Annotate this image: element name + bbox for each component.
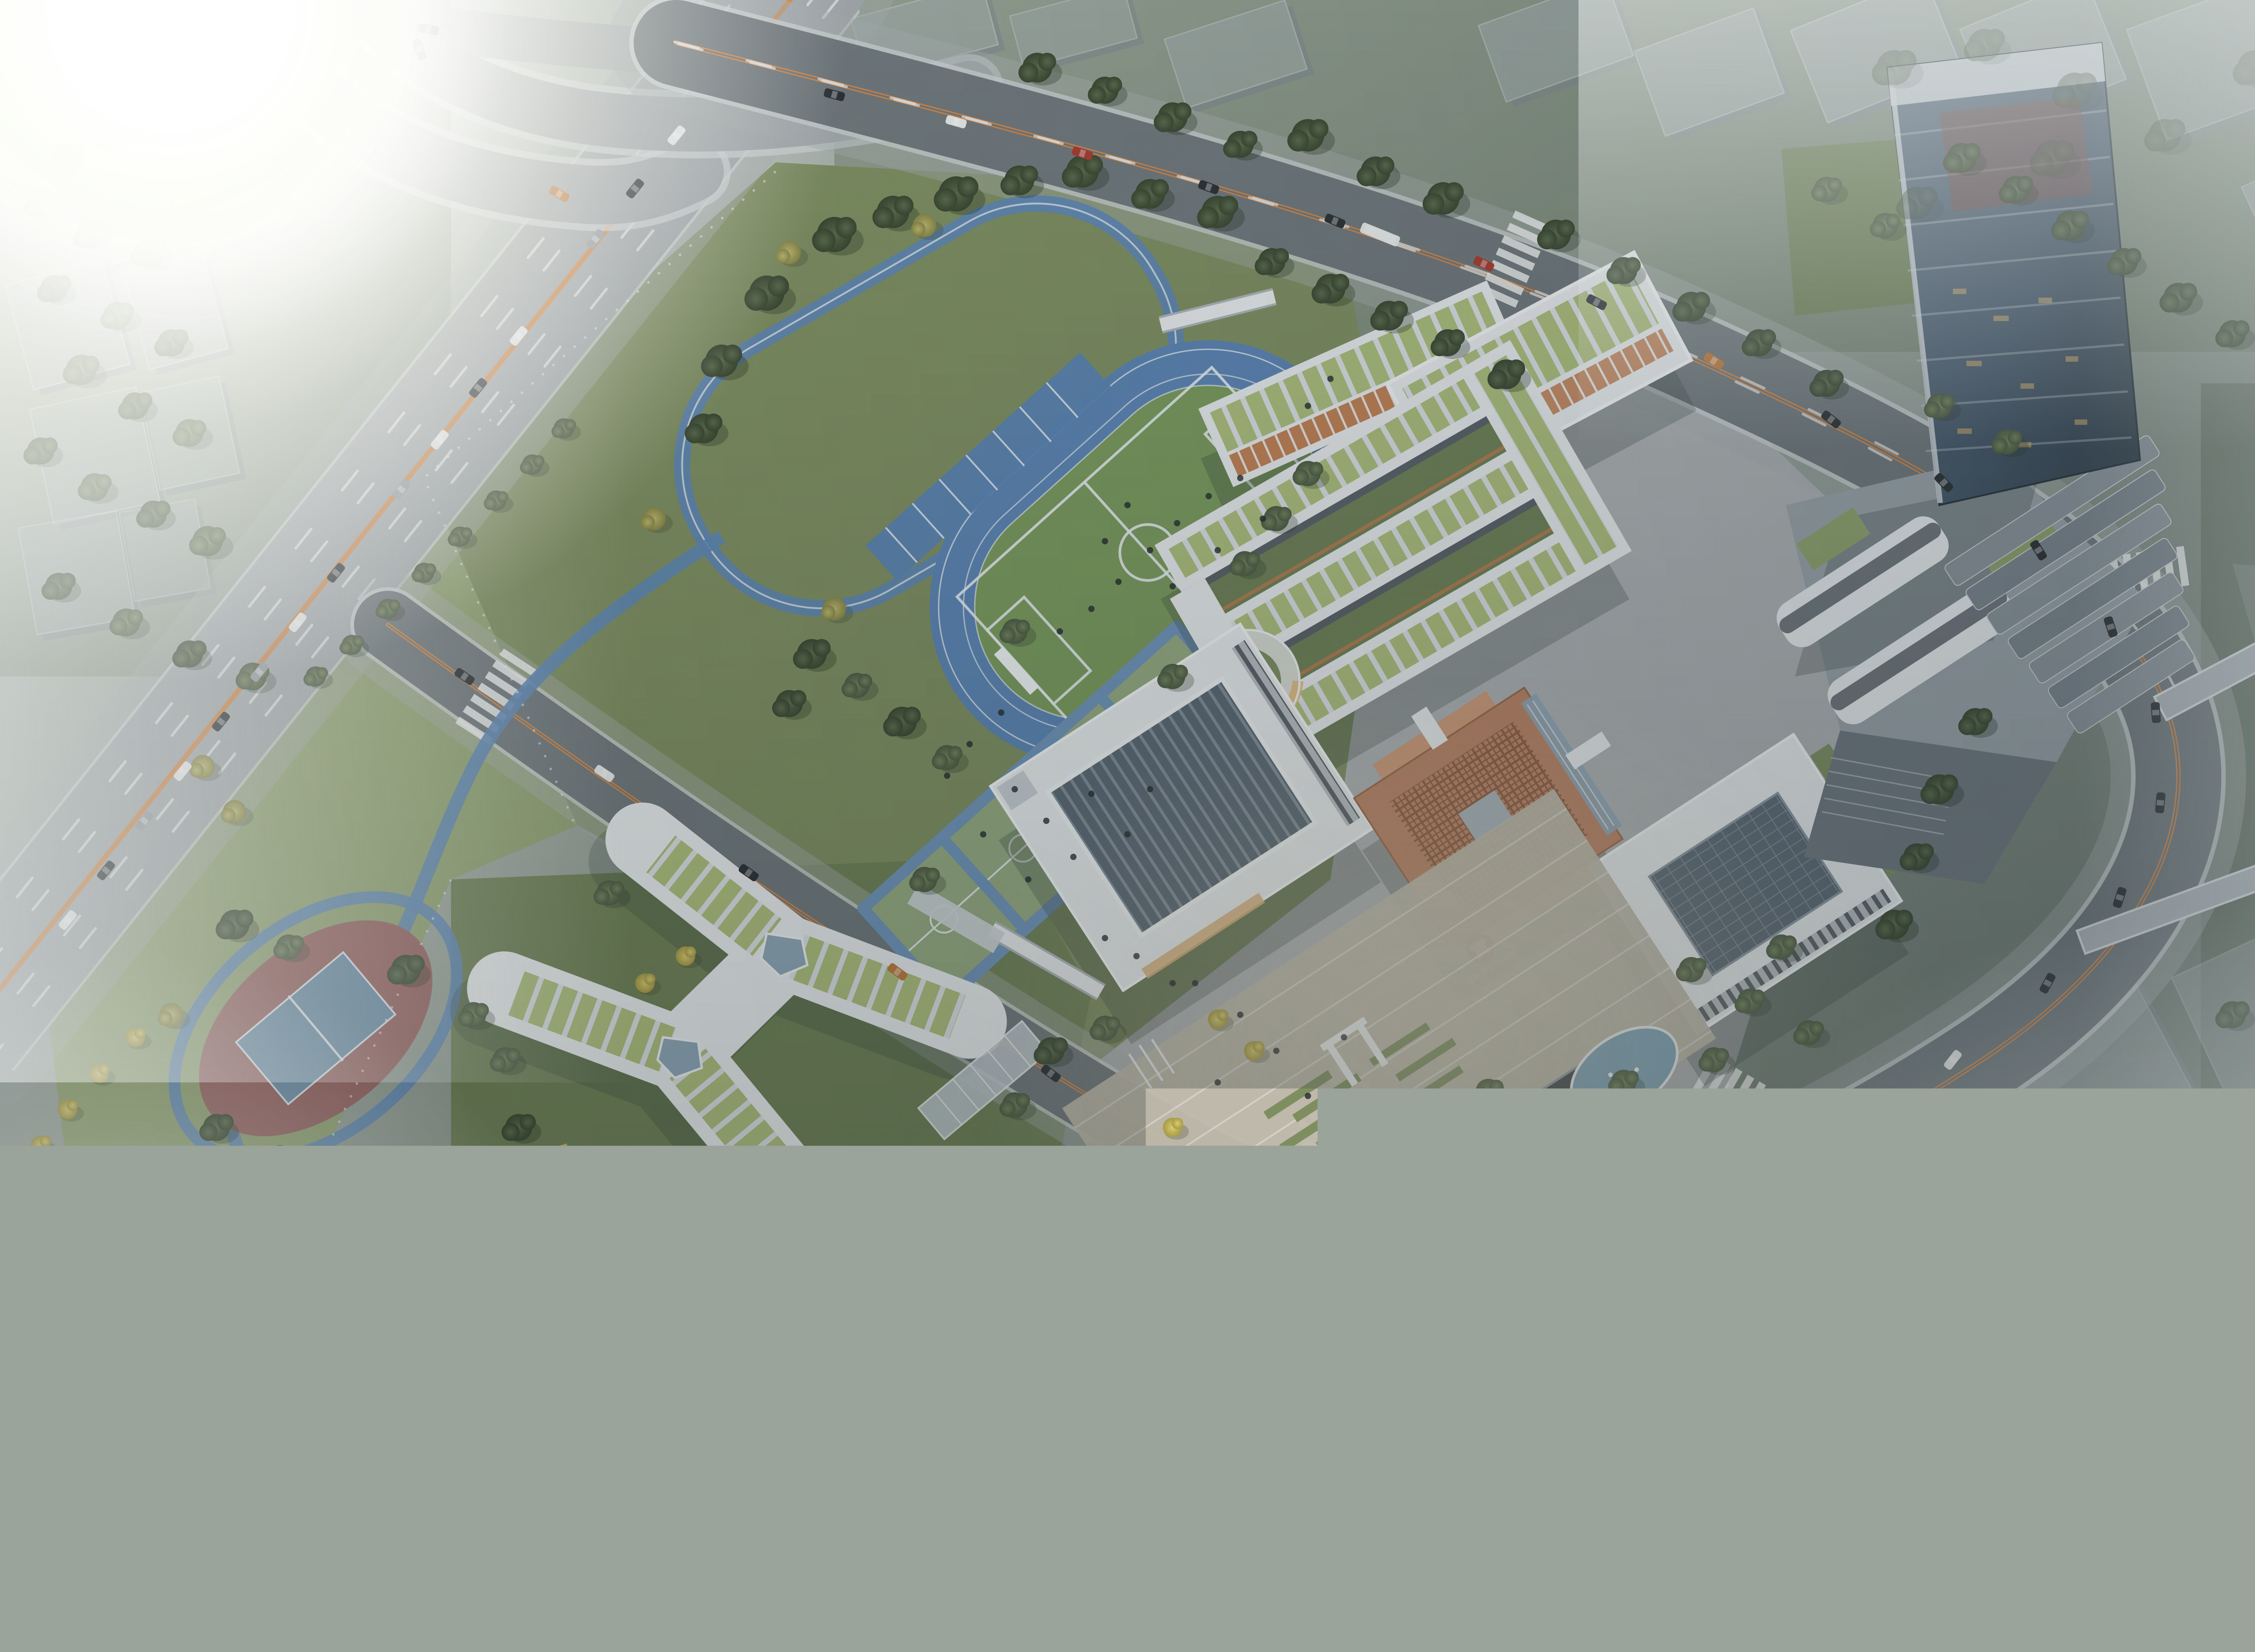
atmosphere-overlays bbox=[0, 0, 2255, 1652]
aerial-render-image: 實 温州市实验中学 bbox=[0, 0, 2255, 1652]
scene-svg: 實 温州市实验中学 bbox=[0, 0, 2255, 1652]
